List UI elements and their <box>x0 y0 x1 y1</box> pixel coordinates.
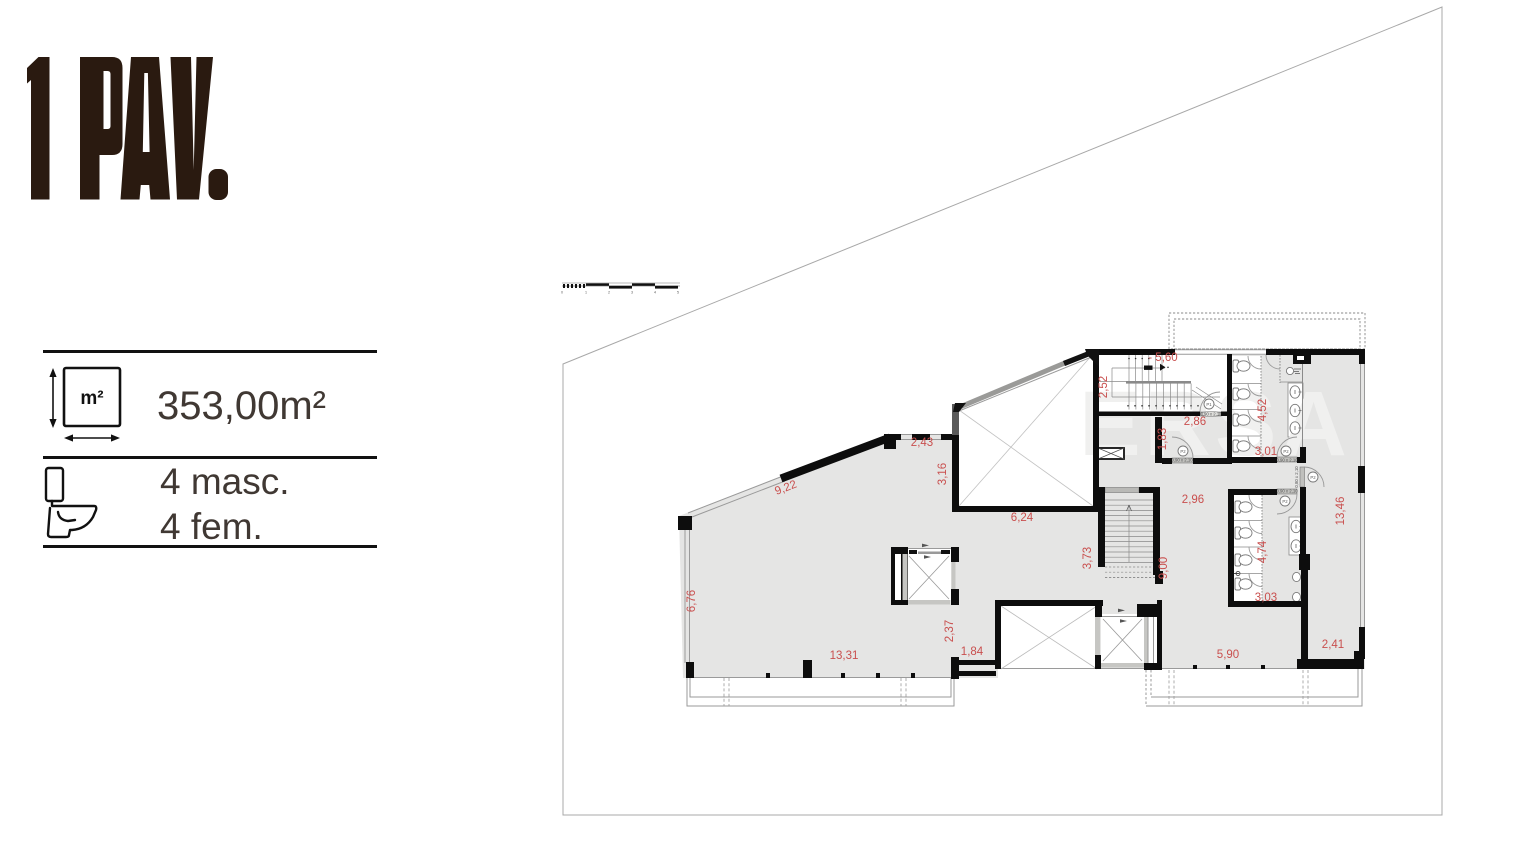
svg-text:2,43: 2,43 <box>911 437 933 449</box>
svg-text:9,00: 9,00 <box>1158 557 1170 579</box>
svg-text:3,01: 3,01 <box>1255 446 1277 458</box>
svg-text:3,16: 3,16 <box>937 463 949 485</box>
svg-text:1,84: 1,84 <box>961 646 984 658</box>
svg-text:5,90: 5,90 <box>1217 649 1239 661</box>
svg-text:2,96: 2,96 <box>1182 494 1204 506</box>
svg-text:1: 1 <box>585 291 587 295</box>
svg-text:3: 3 <box>631 291 633 295</box>
svg-text:0,90 x 2,10: 0,90 x 2,10 <box>1276 489 1298 494</box>
svg-text:4: 4 <box>654 291 656 295</box>
svg-text:2,52: 2,52 <box>1098 376 1110 398</box>
svg-text:4 masc.: 4 masc. <box>160 461 290 502</box>
svg-text:3,73: 3,73 <box>1082 547 1094 569</box>
svg-text:2,37: 2,37 <box>944 620 956 642</box>
svg-text:4 fem.: 4 fem. <box>160 506 263 547</box>
svg-text:P2: P2 <box>1283 449 1289 454</box>
svg-text:2,86: 2,86 <box>1184 416 1206 428</box>
svg-text:0,80 x 2,10: 0,80 x 2,10 <box>1294 466 1299 488</box>
svg-text:13,31: 13,31 <box>830 650 859 662</box>
svg-text:0,90 x 2,10: 0,90 x 2,10 <box>1171 458 1193 463</box>
svg-text:353,00m²: 353,00m² <box>157 384 326 428</box>
svg-text:6,76: 6,76 <box>686 590 698 612</box>
svg-text:3,03: 3,03 <box>1255 592 1277 604</box>
svg-text:- 5,60: - 5,60 <box>1148 352 1177 364</box>
svg-text:2: 2 <box>608 291 610 295</box>
svg-text:0,90 x 2,10: 0,90 x 2,10 <box>1276 458 1298 463</box>
svg-text:5: 5 <box>677 291 679 295</box>
svg-text:4,52: 4,52 <box>1257 399 1269 421</box>
svg-text:P2: P2 <box>1310 475 1316 480</box>
svg-text:13,46: 13,46 <box>1335 497 1347 526</box>
svg-text:1,83: 1,83 <box>1157 428 1169 450</box>
svg-text:P2: P2 <box>1282 499 1288 504</box>
svg-text:P2: P2 <box>1180 449 1186 454</box>
svg-text:m²: m² <box>80 388 103 409</box>
svg-text:0: 0 <box>561 291 563 295</box>
svg-text:6,24: 6,24 <box>1011 512 1034 524</box>
svg-text:4,74: 4,74 <box>1257 540 1269 563</box>
svg-text:2,41: 2,41 <box>1322 639 1344 651</box>
svg-text:P1: P1 <box>1206 402 1212 407</box>
